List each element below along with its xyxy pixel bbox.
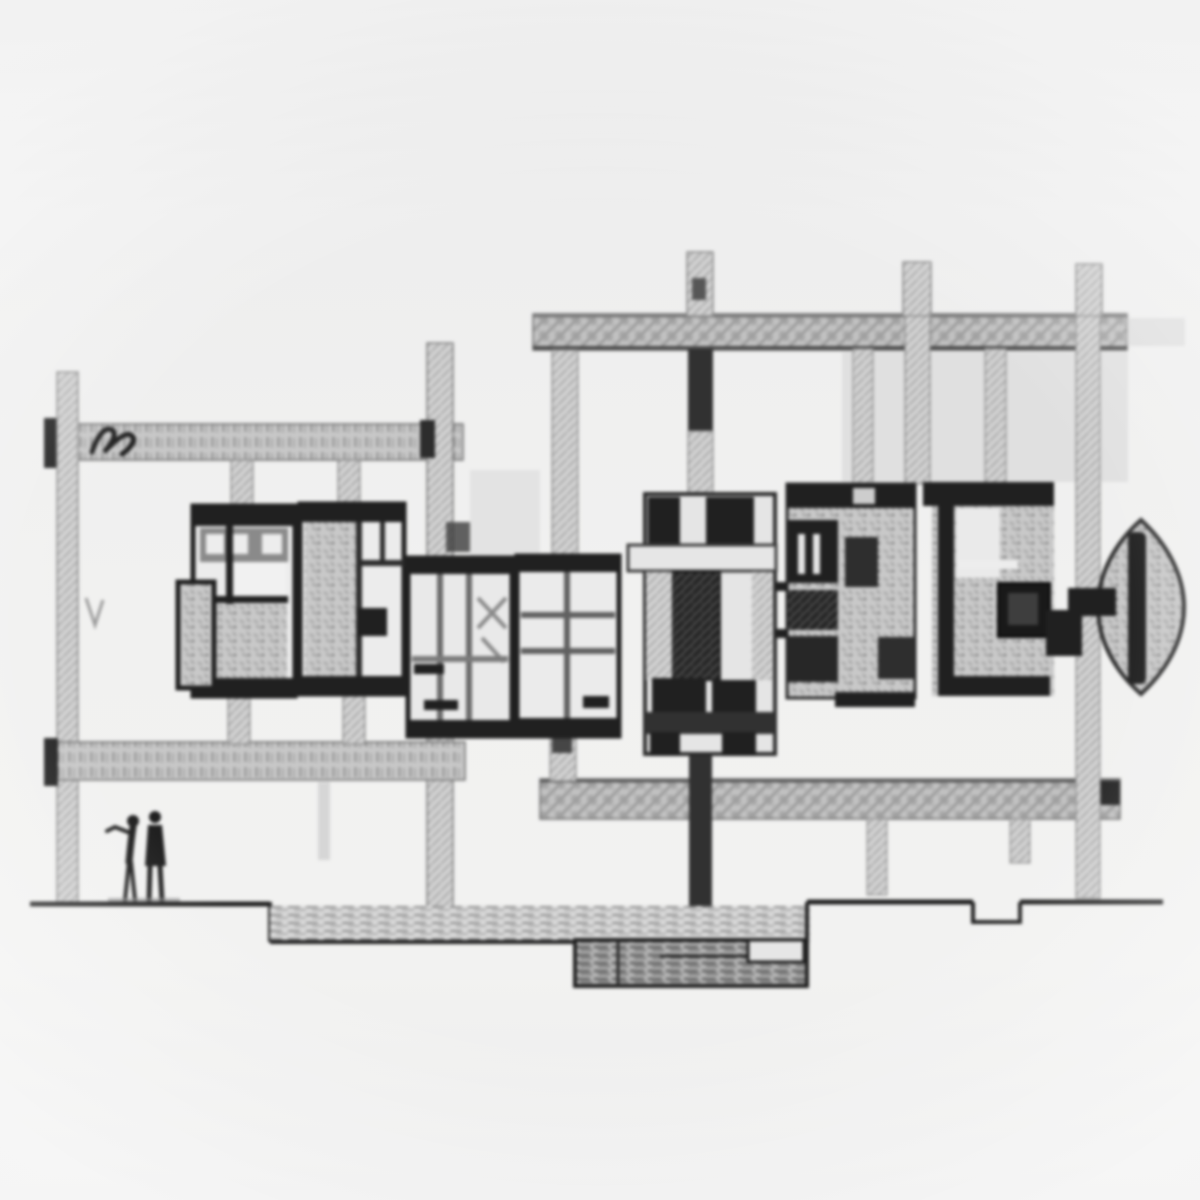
module-c-hardware-1: [414, 664, 444, 674]
module-fg-slit-2: [813, 534, 820, 574]
module-d-mullion-horizontal-1: [521, 612, 615, 618]
module-fg-bottom-bar: [835, 692, 915, 707]
drawing-scene: [0, 0, 1200, 1200]
elevation-drawing: [0, 0, 1200, 1200]
module-d-mullion-vertical: [564, 572, 570, 718]
top-beam-faint-extension: [1127, 318, 1185, 346]
module-b-mullion-horizontal: [356, 560, 404, 566]
post-upper-860: [853, 349, 873, 485]
lower-left-beam-endcap: [44, 738, 58, 786]
scanned-drawing-page: [0, 0, 1200, 1200]
person-2-coat: [145, 825, 166, 866]
left-post-v-mark: [86, 598, 103, 625]
core-top-block-right: [706, 497, 754, 545]
module-h-inner-slit: [958, 560, 1018, 569]
module-d-top-bar: [517, 556, 619, 572]
pool-water-band: [270, 906, 810, 942]
lower-right-beam: [540, 779, 1120, 819]
lower-left-beam: [55, 742, 465, 780]
person-1-arm: [107, 827, 133, 834]
module-c-sill: [412, 656, 508, 662]
module-a-header-light-2: [232, 534, 248, 554]
module-c-mullion-2: [466, 574, 472, 720]
dish-mast: [1128, 532, 1146, 684]
module-h-inner-square-core: [1008, 593, 1038, 625]
module-b-dark-pane: [357, 608, 387, 636]
core-bottom-block-right: [712, 680, 756, 714]
module-fg-tick-2: [776, 629, 788, 638]
module-c-bottom-bar: [408, 720, 512, 736]
module-b-hatch-left: [305, 522, 357, 676]
ground-notch: [973, 902, 1020, 922]
module-a-top-bar: [193, 506, 295, 526]
core-footer: [645, 712, 775, 734]
module-fg-top-bar: [787, 484, 915, 508]
core-shaft: [672, 572, 720, 680]
module-a-header-light-1: [206, 534, 224, 554]
core-foot-right: [722, 732, 756, 756]
module-h-bottom-bar: [938, 676, 1050, 696]
module-b-bottom-bar: [300, 676, 404, 694]
person-2-head: [149, 811, 161, 823]
left-beam-endcap: [44, 418, 58, 468]
left-post: [57, 372, 78, 905]
dish-arm-block: [1046, 610, 1082, 656]
module-a-pane-upper-right: [234, 562, 286, 598]
module-b-mullion-sub: [380, 522, 385, 560]
module-b-mullion-vertical: [356, 522, 362, 676]
module-fg-block-mid: [845, 537, 878, 587]
module-fg-block-right: [878, 637, 915, 679]
core-foot-left: [650, 732, 680, 756]
roof-post-center-mark: [692, 278, 706, 300]
core-bottom-block-left: [652, 678, 706, 714]
module-d-hardware: [583, 696, 609, 708]
core-top-block-left: [648, 497, 680, 545]
module-d-mullion-horizontal-2: [521, 648, 615, 654]
module-a-side-panel: [178, 582, 214, 688]
module-c-top-bar: [408, 558, 512, 574]
tall-post-2-cap: [420, 420, 435, 458]
module-a-header-light-3: [262, 534, 282, 554]
pool-step-raised: [748, 940, 804, 962]
center-post-mid: [688, 431, 713, 495]
module-b-top-bar: [300, 504, 404, 522]
core-left-wing: [646, 572, 672, 680]
module-d-bottom-bar: [517, 718, 619, 736]
post-upper-985: [985, 349, 1006, 483]
core-light-bar: [628, 545, 776, 571]
drop-post-b: [343, 692, 365, 744]
module-h-left-jamb: [938, 500, 954, 680]
module-c-mullion-1: [437, 574, 443, 720]
module-c-base: [408, 558, 512, 736]
drop-post-b-faint: [318, 782, 330, 860]
roof-post-mid: [903, 262, 931, 316]
module-fg-block-3: [788, 636, 838, 682]
module-fg-slit-1: [798, 534, 805, 574]
post-lower-1013: [1010, 819, 1030, 863]
hanger-module-b: [338, 460, 360, 508]
module-fg-top-notch: [853, 488, 875, 504]
drop-post-a: [228, 694, 250, 744]
roof-post-right: [1076, 264, 1102, 316]
post-lower-870: [867, 819, 887, 895]
person-2-legs: [149, 866, 162, 901]
top-beam: [533, 314, 1127, 350]
tall-post-2-smudge: [446, 522, 470, 552]
center-post-upper-dark: [688, 349, 713, 431]
module-c-hardware-2: [424, 700, 458, 710]
person-1-legs: [125, 862, 135, 900]
core-right-strip: [752, 572, 772, 680]
hanger-module-d: [552, 350, 578, 560]
hanger-module-a: [231, 460, 253, 510]
post-upper-907: [905, 316, 930, 484]
module-fg-block-2: [788, 590, 838, 630]
module-fg-tick-1: [776, 582, 788, 591]
